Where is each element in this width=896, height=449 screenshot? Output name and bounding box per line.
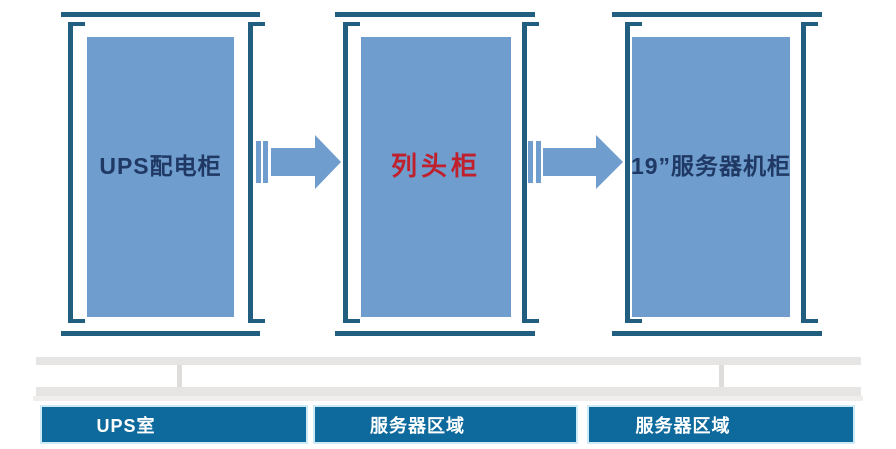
- cabinet-top-bar: [61, 12, 260, 17]
- left-bracket-icon: [625, 22, 630, 323]
- zone-label: 服务器区域: [636, 412, 731, 438]
- left-bracket-icon: [343, 22, 348, 323]
- zone-label: UPS室: [96, 412, 155, 438]
- cabinet-ups-distribution: UPS配电柜: [61, 12, 260, 336]
- floor-rail-top: [36, 357, 861, 365]
- arrow-shaft: [543, 148, 596, 176]
- arrow-shaft: [271, 148, 315, 176]
- cabinet-label: UPS配电柜: [99, 147, 221, 181]
- right-bracket-icon: [801, 22, 806, 323]
- rail-drop-connector: [719, 365, 724, 388]
- cabinet-top-bar: [335, 12, 535, 17]
- cabinet-label: 19”服务器机柜: [631, 147, 791, 181]
- cabinet-bottom-bar: [612, 331, 822, 336]
- cabinet-body: 19”服务器机柜: [632, 37, 790, 317]
- zone-label: 服务器区域: [370, 412, 465, 438]
- power-flow-diagram: UPS配电柜 列头柜 19”服务器机柜: [0, 0, 896, 449]
- zone-bar-ups-room: UPS室: [40, 405, 308, 444]
- zone-bar-server-area-2: 服务器区域: [587, 405, 855, 444]
- cabinet-bottom-bar: [335, 331, 535, 336]
- connector-dash-icon: [263, 141, 268, 183]
- connector-dash-icon: [256, 141, 261, 183]
- cabinet-bottom-bar: [61, 331, 260, 336]
- cabinet-body: UPS配电柜: [87, 37, 234, 317]
- cabinet-top-bar: [612, 12, 822, 17]
- flow-connector-1: [256, 134, 346, 190]
- flow-connector-2: [528, 134, 624, 190]
- cabinet-server-rack: 19”服务器机柜: [612, 12, 822, 336]
- floor-rail-shadow: [33, 396, 863, 401]
- left-bracket-icon: [68, 22, 73, 323]
- cabinet-row-head: 列头柜: [335, 12, 535, 336]
- floor-rail-bottom: [36, 387, 861, 396]
- right-bracket-icon: [248, 22, 253, 323]
- connector-dash-icon: [536, 141, 541, 183]
- right-bracket-icon: [522, 22, 527, 323]
- cabinet-body: 列头柜: [361, 37, 511, 317]
- connector-dash-icon: [528, 141, 533, 183]
- zone-bar-server-area-1: 服务器区域: [313, 405, 578, 444]
- cabinet-label: 列头柜: [391, 146, 481, 183]
- rail-drop-connector: [177, 365, 182, 388]
